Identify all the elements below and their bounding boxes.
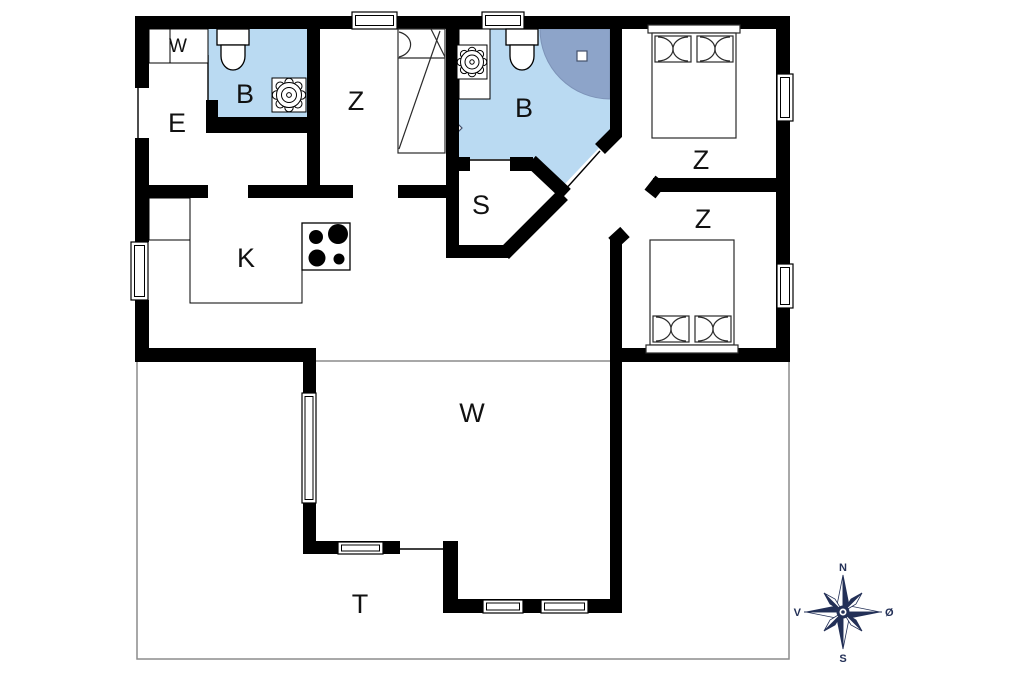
window <box>541 600 588 613</box>
window <box>302 393 316 503</box>
room-label-bedroom-right-bottom: Z <box>695 204 712 234</box>
room-label-living: W <box>459 398 485 428</box>
room-label-wardrobe: W <box>169 36 187 57</box>
room-label-kitchen: K <box>237 243 255 273</box>
compass-north-label: N <box>839 562 847 574</box>
sink-icon <box>457 45 487 79</box>
window <box>352 12 397 29</box>
compass-west-label: V <box>794 607 802 619</box>
room-label-bath2: B <box>515 93 533 123</box>
window <box>777 264 793 308</box>
floor-plan-drawing: W E B Z B S Z Z K W T <box>0 0 1024 682</box>
room-label-entrance: E <box>168 108 186 138</box>
floor-plan: W E B Z B S Z Z K W T <box>0 0 1024 682</box>
window <box>482 12 524 29</box>
room-label-sauna: S <box>472 190 490 220</box>
room-label-bedroom-right-top: Z <box>693 145 710 175</box>
compass-rose-icon: N S V Ø <box>794 562 894 665</box>
room-label-bath1: B <box>236 79 254 109</box>
room-label-bedroom-mid: Z <box>348 86 365 116</box>
window <box>483 600 523 613</box>
room-label-terrace: T <box>352 589 369 619</box>
window <box>338 542 383 554</box>
compass-south-label: S <box>839 653 846 665</box>
window <box>131 242 148 300</box>
window <box>777 74 793 121</box>
double-bed <box>648 25 740 138</box>
sink-icon <box>272 78 306 112</box>
double-bed <box>646 240 738 353</box>
compass-east-label: Ø <box>885 607 894 619</box>
shower-drain-icon <box>577 51 587 61</box>
bunk-bed <box>398 29 445 153</box>
